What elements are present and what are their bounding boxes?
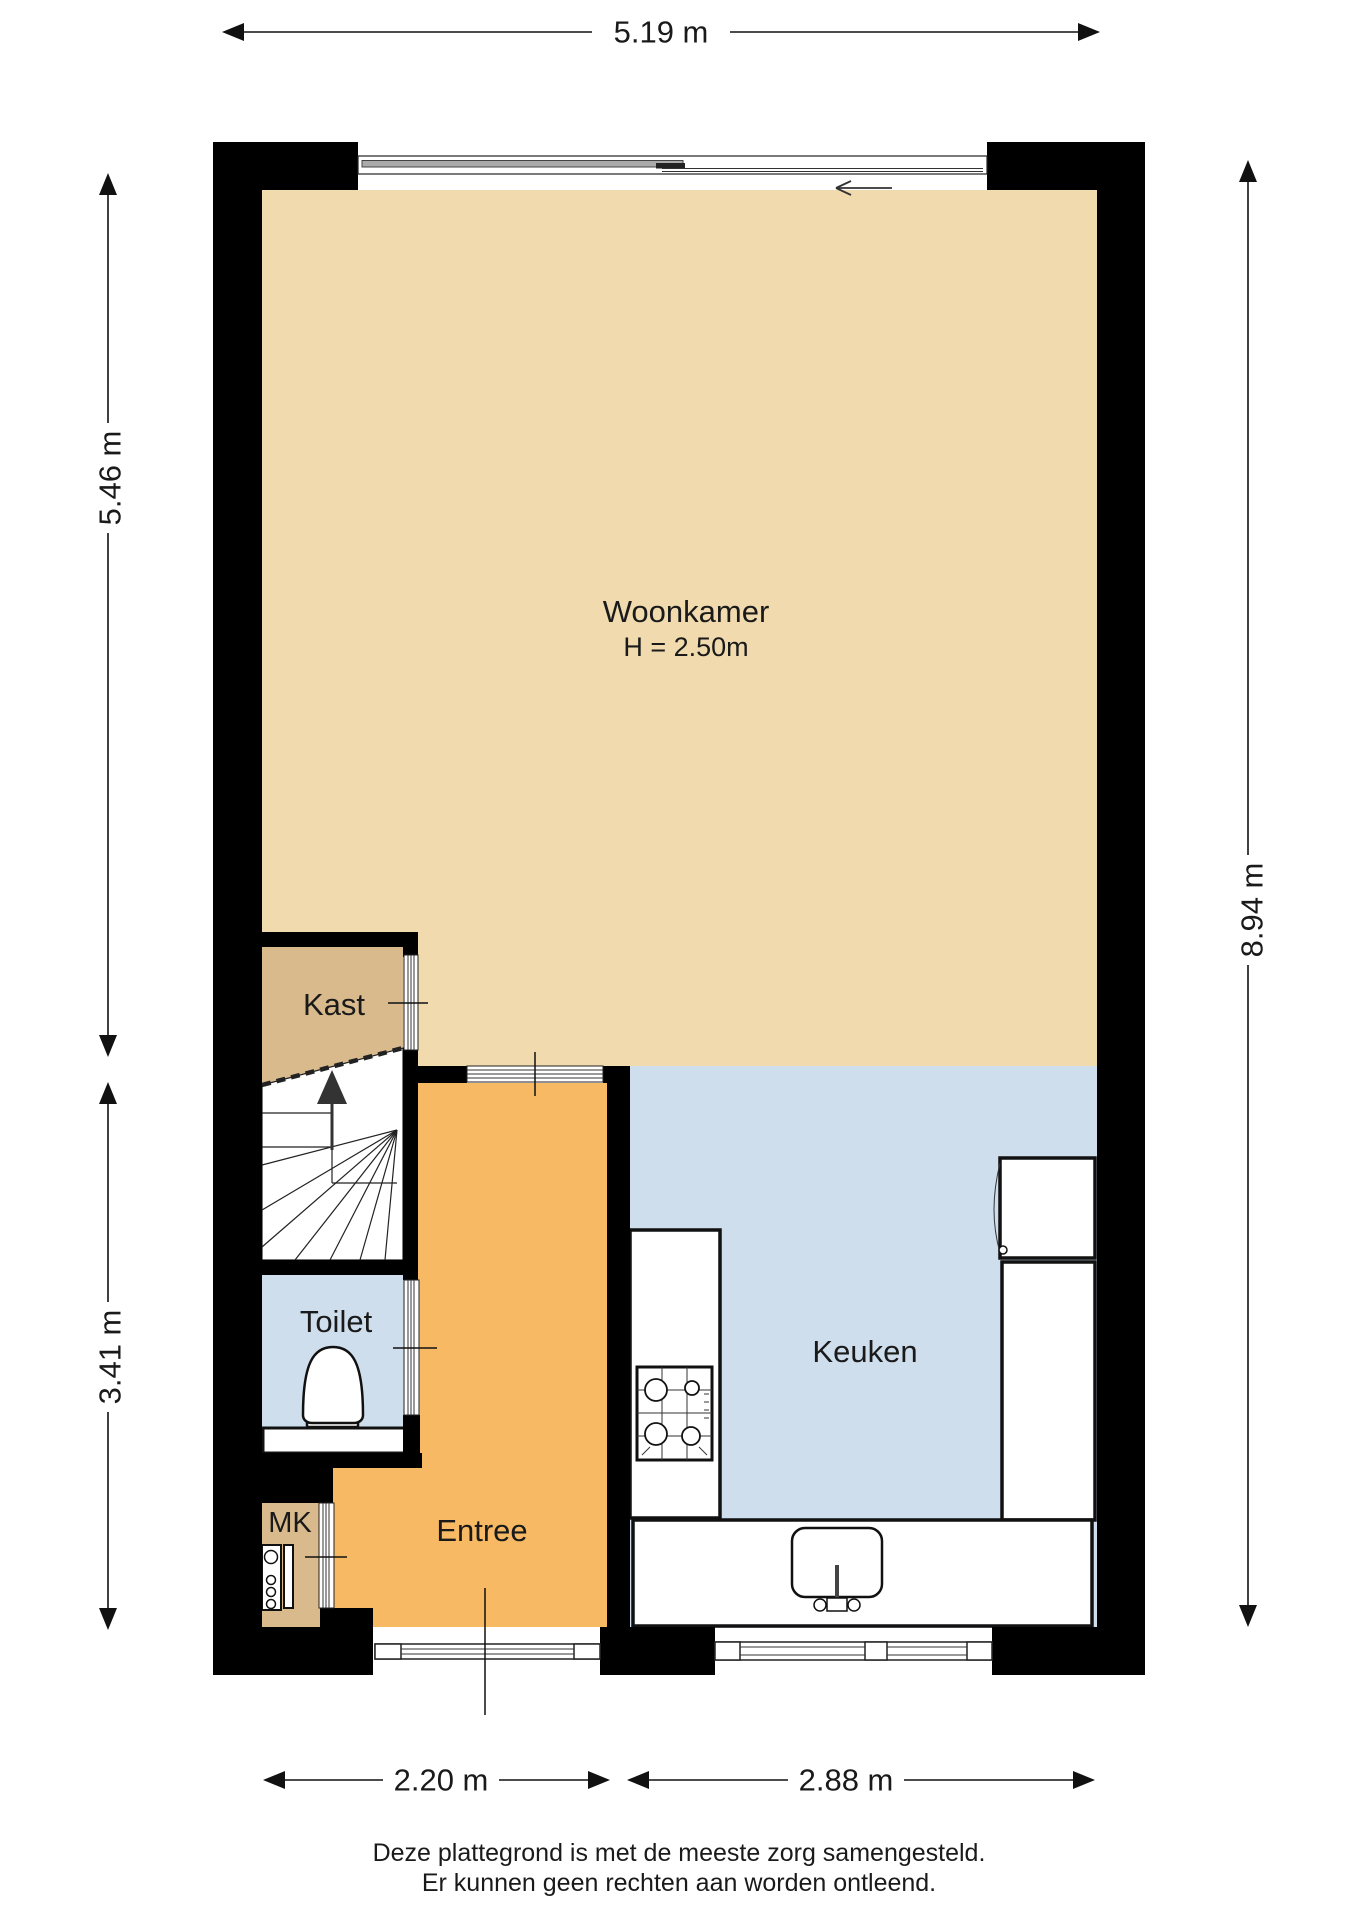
kitchen-appliance	[1000, 1158, 1095, 1258]
wall-entree-keuken	[607, 1066, 630, 1628]
dimension-right-label: 8.94 m	[1235, 863, 1270, 958]
sliding-window-top	[358, 156, 987, 195]
dimension-top: 5.19 m	[222, 15, 1100, 50]
wall-bottom-middle	[600, 1627, 715, 1675]
dimension-bottom-left: 2.20 m	[263, 1763, 610, 1798]
toilet-duct	[263, 1428, 407, 1453]
toilet-icon	[303, 1347, 363, 1427]
wall-toilet-top	[262, 1260, 418, 1275]
dimension-bottom-left-label: 2.20 m	[394, 1763, 489, 1798]
mk-label: MK	[268, 1507, 312, 1539]
wall-bottom-right	[992, 1627, 1145, 1675]
footer: Deze plattegrond is met de meeste zorg s…	[373, 1839, 986, 1897]
footer-line-2: Er kunnen geen rechten aan worden ontlee…	[422, 1869, 936, 1897]
dimension-left-lower-label: 3.41 m	[93, 1310, 128, 1405]
stove-icon	[637, 1367, 712, 1460]
dimension-right: 8.94 m	[1235, 160, 1270, 1627]
wall-toilet-bottom	[262, 1453, 422, 1468]
dimension-bottom-right-label: 2.88 m	[799, 1763, 894, 1798]
toilet-label: Toilet	[300, 1304, 373, 1339]
entree-label: Entree	[436, 1513, 527, 1548]
dimension-left-upper-label: 5.46 m	[93, 431, 128, 526]
keuken-label: Keuken	[812, 1334, 917, 1369]
footer-line-1: Deze plattegrond is met de meeste zorg s…	[373, 1839, 986, 1867]
wall-kast-door-top	[403, 932, 418, 957]
woonkamer-label: Woonkamer	[603, 594, 770, 629]
wall-stairs-right	[403, 1048, 418, 1280]
wall-mk-top	[262, 1468, 333, 1503]
wall-mk-door-bottom	[320, 1608, 373, 1627]
dimension-bottom-right: 2.88 m	[627, 1763, 1095, 1798]
dimension-left-upper: 5.46 m	[93, 173, 128, 1057]
meter-cabinet-icon	[262, 1545, 293, 1610]
kast-label: Kast	[303, 987, 365, 1022]
dimension-left-lower: 3.41 m	[93, 1082, 128, 1630]
wall-kast-top	[262, 932, 418, 947]
woonkamer-height-label: H = 2.50m	[623, 632, 748, 662]
appliance-hinge	[999, 1246, 1007, 1254]
dimension-top-label: 5.19 m	[614, 15, 709, 50]
wall-right	[1097, 142, 1145, 1675]
wall-entree-window-left	[418, 1066, 467, 1083]
wall-left	[213, 142, 262, 1675]
floor-plan-page: 5.19 m 5.46 m 3.41 m	[0, 0, 1358, 1920]
wall-bottom-left	[213, 1627, 373, 1675]
floor-plan: 5.19 m 5.46 m 3.41 m	[0, 0, 1358, 1920]
stairs	[262, 1048, 403, 1260]
keuken-window	[715, 1642, 992, 1660]
kitchen-counter-right	[1002, 1262, 1095, 1520]
